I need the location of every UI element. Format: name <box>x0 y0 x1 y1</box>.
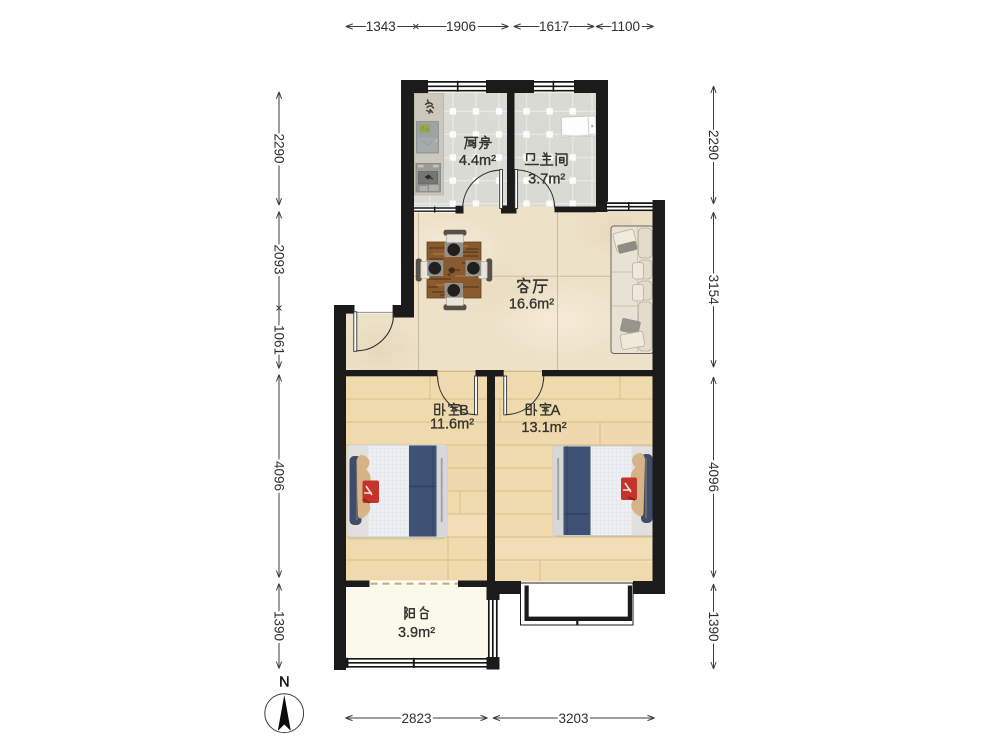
svg-text:2823: 2823 <box>401 711 431 726</box>
svg-text:2093: 2093 <box>271 244 286 274</box>
svg-text:1390: 1390 <box>706 611 721 641</box>
svg-text:3.7m²: 3.7m² <box>528 171 565 187</box>
svg-text:1390: 1390 <box>271 611 286 641</box>
svg-text:3.9m²: 3.9m² <box>398 625 435 641</box>
svg-text:3203: 3203 <box>558 711 588 726</box>
svg-text:A: A <box>551 403 561 419</box>
svg-text:4096: 4096 <box>706 462 721 492</box>
svg-text:1343: 1343 <box>366 19 396 34</box>
svg-text:4096: 4096 <box>271 461 286 491</box>
svg-text:16.6m²: 16.6m² <box>509 297 554 313</box>
svg-text:1617: 1617 <box>539 19 569 34</box>
svg-text:13.1m²: 13.1m² <box>521 420 566 436</box>
svg-text:3154: 3154 <box>706 275 721 306</box>
svg-text:N: N <box>279 675 289 691</box>
svg-text:1061: 1061 <box>271 325 286 355</box>
svg-text:1100: 1100 <box>611 19 640 34</box>
svg-text:4.4m²: 4.4m² <box>459 153 496 169</box>
svg-text:2290: 2290 <box>706 130 721 160</box>
svg-text:2290: 2290 <box>271 133 286 163</box>
svg-text:1906: 1906 <box>446 19 476 34</box>
svg-text:11.6m²: 11.6m² <box>430 416 474 432</box>
